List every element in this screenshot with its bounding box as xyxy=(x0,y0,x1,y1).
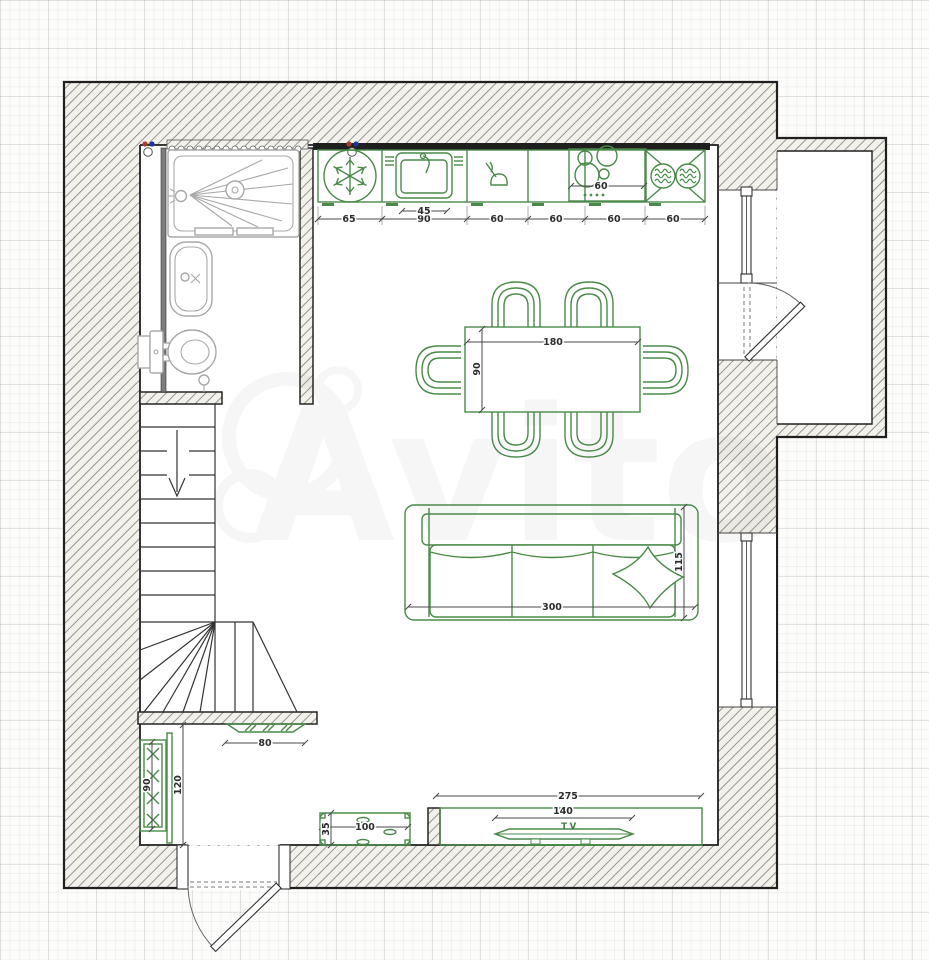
shower-head-icon xyxy=(176,191,187,202)
tv-label: TV xyxy=(561,822,578,832)
svg-text:60: 60 xyxy=(607,214,621,225)
cold-water-dot xyxy=(353,141,358,146)
bathroom-wall-bottom xyxy=(140,392,222,404)
balcony-wall-bottom xyxy=(777,424,872,437)
shower-door xyxy=(195,228,233,235)
window-jamb xyxy=(741,274,752,283)
svg-text:300: 300 xyxy=(542,602,562,613)
watermark-text: Avito xyxy=(252,368,788,584)
door-jamb xyxy=(279,845,290,889)
svg-text:60: 60 xyxy=(594,181,608,192)
floor-plan-page: { "watermark": { "brand": "Avito" }, "pa… xyxy=(0,0,929,960)
svg-text:35: 35 xyxy=(321,822,332,835)
svg-text:140: 140 xyxy=(553,806,573,817)
shower-door xyxy=(237,228,273,235)
balcony-wall-top xyxy=(777,138,886,151)
shower-drain xyxy=(226,181,244,199)
cold-water-dot xyxy=(149,141,154,146)
svg-text:100: 100 xyxy=(355,822,375,833)
window-jamb xyxy=(741,187,752,196)
watermark: Avito xyxy=(218,368,788,584)
svg-text:80: 80 xyxy=(258,738,272,749)
understair-wall xyxy=(138,712,317,724)
kitchen-window xyxy=(742,196,751,274)
hot-water-dot xyxy=(346,141,351,146)
svg-text:180: 180 xyxy=(543,337,563,348)
svg-text:120: 120 xyxy=(173,775,184,795)
svg-text:60: 60 xyxy=(490,214,504,225)
svg-text:275: 275 xyxy=(558,791,578,802)
wall-top xyxy=(64,82,777,145)
svg-text:65: 65 xyxy=(342,214,355,225)
balcony-wall-right xyxy=(872,138,886,437)
kitchen-backsplash-band xyxy=(313,143,710,150)
svg-text:90: 90 xyxy=(142,778,153,792)
floor-plan-svg: 65 90 60 60 60 60 45 60 180 90 xyxy=(0,0,929,960)
door-jamb xyxy=(177,845,188,889)
svg-text:45: 45 xyxy=(417,206,430,217)
window-jamb xyxy=(741,699,752,707)
svg-text:60: 60 xyxy=(666,214,680,225)
svg-text:60: 60 xyxy=(549,214,563,225)
hot-water-dot xyxy=(142,141,147,146)
entry-wall-stub xyxy=(428,808,440,845)
shower xyxy=(168,150,299,237)
bathroom-wall-right xyxy=(300,148,313,404)
wall-left xyxy=(64,82,140,888)
wall-bottom xyxy=(64,845,777,888)
bathroom-sink xyxy=(170,242,212,316)
